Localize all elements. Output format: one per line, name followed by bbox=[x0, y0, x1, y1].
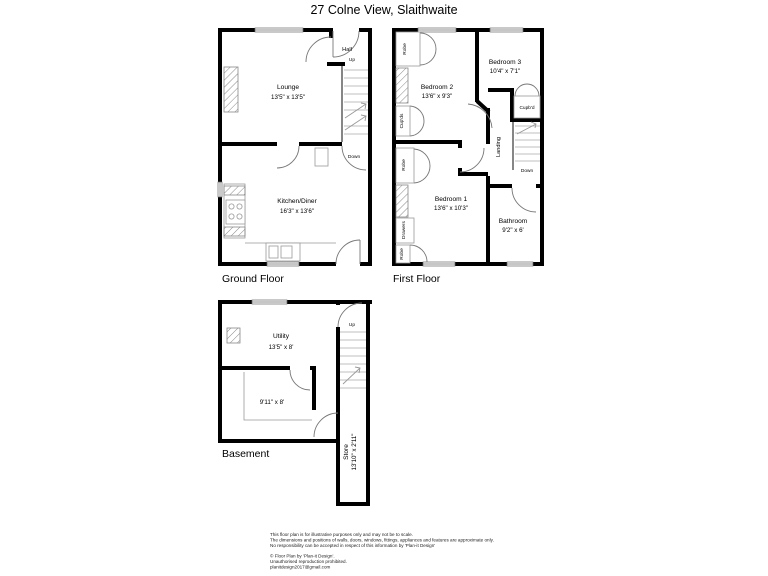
hall-label: Hall bbox=[342, 47, 352, 53]
page-title: 27 Colne View, Slaithwaite bbox=[310, 3, 457, 17]
footer-disclaimer: This floor plan is for illustrative purp… bbox=[270, 532, 494, 570]
floor-plan-page: 27 Colne View, Slaithwaite bbox=[0, 0, 768, 576]
first-floor-plan: Bedroom 2 13'6" x 9'3" Bedroom 3 10'4" x… bbox=[392, 28, 544, 285]
kitchen-worktop bbox=[224, 186, 245, 195]
copyright-line-2: Unauthorised reproduction prohibited. bbox=[270, 559, 347, 564]
store-name: Store bbox=[343, 444, 350, 460]
lounge-chimney-breast bbox=[224, 67, 238, 112]
store-dims: 13'10" x 2'11" bbox=[351, 434, 358, 471]
kitchen-name: Kitchen/Diner bbox=[277, 198, 317, 205]
ground-floor-plan: Hall Up Down Lounge 13'5" x 13'5" Kitche… bbox=[218, 28, 372, 285]
bedroom3-dims: 10'4" x 7'1" bbox=[490, 68, 521, 75]
bedroom2-name: Bedroom 2 bbox=[421, 84, 454, 91]
bathroom-name: Bathroom bbox=[499, 218, 528, 225]
disclaimer-line-1: This floor plan is for illustrative purp… bbox=[270, 532, 413, 537]
basement-furniture bbox=[227, 328, 312, 420]
stairs-up-label: Up bbox=[349, 322, 355, 328]
first-floor-title: First Floor bbox=[393, 273, 441, 285]
copyright-email: planitdesign2017@gmail.com bbox=[270, 565, 331, 570]
bedroom2-dims: 13'6" x 9'3" bbox=[422, 93, 453, 100]
utility-dims: 13'5" x 8' bbox=[269, 344, 294, 351]
utility-chimney-breast bbox=[227, 328, 240, 343]
cupbd-label: Cupb'd bbox=[519, 105, 534, 111]
landing-label: Landing bbox=[496, 137, 502, 157]
cupds-label: Cup'ds bbox=[399, 113, 405, 128]
kitchen-worktop bbox=[224, 227, 245, 236]
stairs-down-label: Down bbox=[348, 154, 361, 160]
disclaimer-line-3: No responsibility can be accepted in res… bbox=[270, 543, 435, 548]
ground-floor-title: Ground Floor bbox=[222, 273, 284, 285]
bedroom1-chimney-breast bbox=[396, 185, 408, 217]
bedroom1-dims: 13'6" x 10'3" bbox=[434, 205, 468, 212]
bedroom3-name: Bedroom 3 bbox=[489, 59, 522, 66]
bathroom-dims: 9'2" x 6' bbox=[502, 227, 523, 234]
robe-label: Robe bbox=[399, 248, 405, 260]
stairs-down-label: Down bbox=[521, 168, 534, 174]
robe-label: Robe bbox=[401, 159, 407, 171]
first-floor-stairs bbox=[513, 122, 540, 170]
utility-name: Utility bbox=[273, 333, 290, 340]
ground-floor-doors bbox=[277, 31, 366, 264]
bedroom1-name: Bedroom 1 bbox=[435, 196, 468, 203]
copyright-line-1: © Floor Plan by 'Plan-it Design'. bbox=[270, 553, 335, 559]
ground-floor-stairs bbox=[315, 66, 368, 166]
bedroom2-robe bbox=[396, 32, 420, 66]
basement-room-dims: 9'11" x 8' bbox=[260, 399, 284, 406]
lounge-dims: 13'5" x 13'5" bbox=[271, 94, 305, 101]
floor-plan-drawing: 27 Colne View, Slaithwaite bbox=[0, 0, 768, 576]
basement-walls bbox=[218, 300, 372, 506]
basement-stairs bbox=[340, 332, 366, 388]
basement-title: Basement bbox=[222, 448, 269, 460]
basement-plan: Utility 13'5" x 8' 9'11" x 8' Up Store 1… bbox=[218, 300, 372, 506]
stairs-up-label: Up bbox=[349, 57, 355, 63]
basement-windows bbox=[252, 300, 287, 304]
bedroom2-chimney-breast bbox=[396, 68, 408, 103]
kitchen-hob bbox=[226, 200, 245, 224]
disclaimer-line-2: The dimensions and positions of walls, d… bbox=[270, 538, 494, 543]
drawers-label: Drawers bbox=[401, 220, 407, 238]
lounge-name: Lounge bbox=[277, 84, 299, 91]
robe-label: Robe bbox=[402, 43, 408, 55]
kitchen-dims: 16'3" x 13'6" bbox=[280, 208, 314, 215]
understair-cupboard bbox=[315, 148, 328, 166]
